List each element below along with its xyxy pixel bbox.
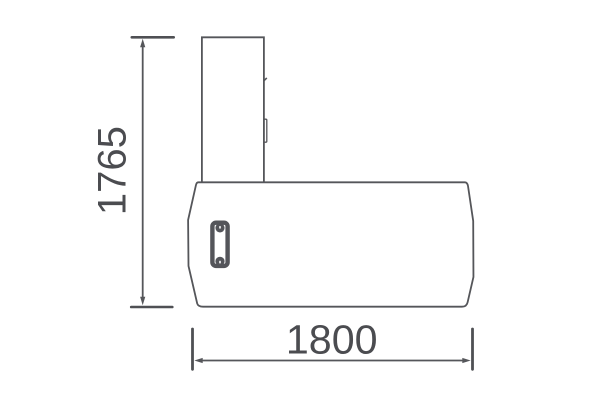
svg-text:1765: 1765 — [90, 126, 134, 215]
svg-text:1800: 1800 — [286, 316, 378, 362]
